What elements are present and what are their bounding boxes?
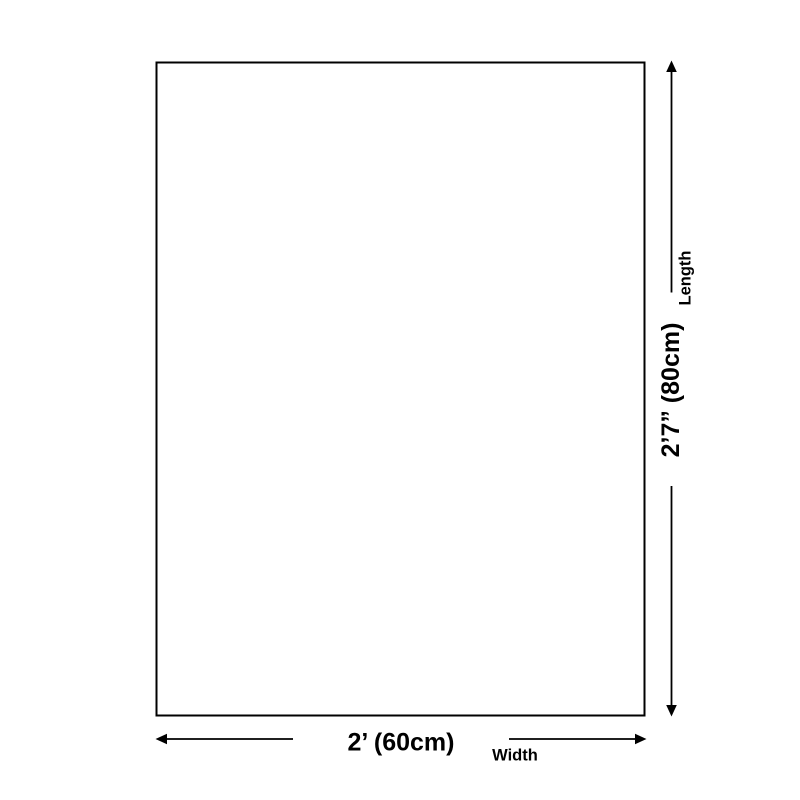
svg-text:Width: Width bbox=[492, 747, 538, 765]
svg-text:2’7” (80cm): 2’7” (80cm) bbox=[657, 323, 685, 458]
svg-text:Length: Length bbox=[677, 251, 695, 306]
svg-text:2’ (60cm): 2’ (60cm) bbox=[347, 729, 454, 757]
